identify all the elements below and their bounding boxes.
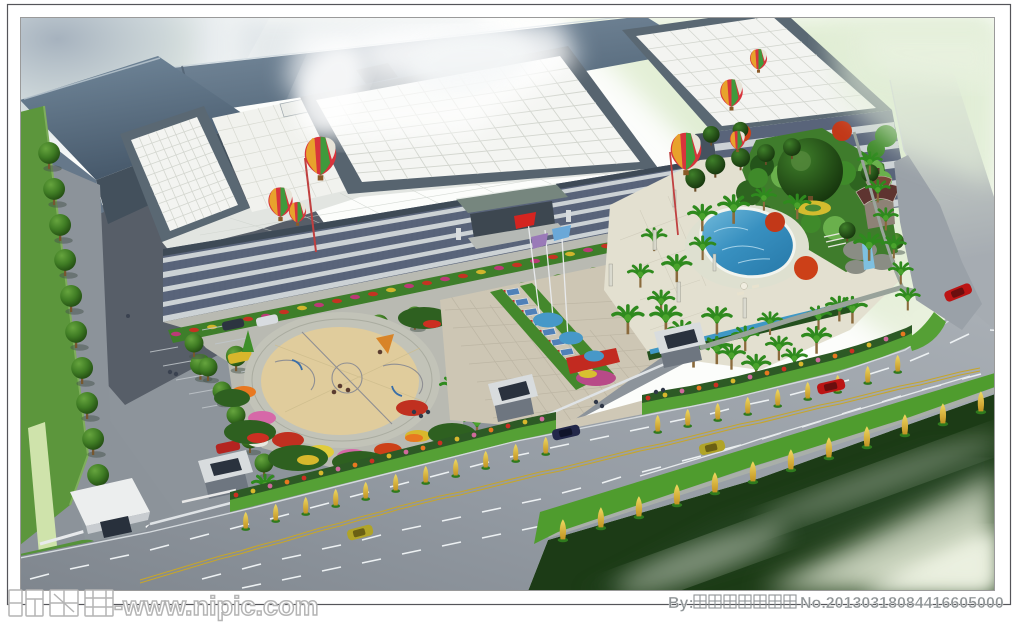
svg-text:No.20130318084416605000: No.20130318084416605000 bbox=[800, 595, 1004, 612]
svg-text:-www.nipic.com: -www.nipic.com bbox=[114, 591, 319, 621]
svg-text:By:: By: bbox=[668, 595, 694, 612]
